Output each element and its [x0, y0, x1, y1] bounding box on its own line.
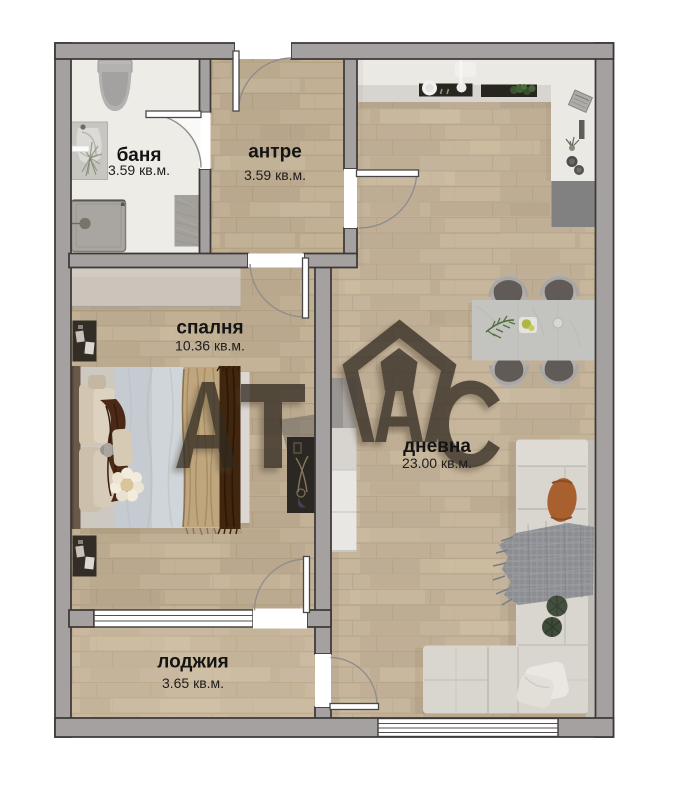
svg-text:лоджия: лоджия [157, 652, 228, 673]
svg-text:10.36 кв.м.: 10.36 кв.м. [175, 338, 245, 354]
svg-text:антре: антре [248, 142, 302, 163]
svg-text:спалня: спалня [176, 318, 243, 339]
svg-text:23.00 кв.м.: 23.00 кв.м. [402, 455, 472, 471]
svg-text:3.59 кв.м.: 3.59 кв.м. [244, 167, 306, 183]
svg-text:3.59 кв.м.: 3.59 кв.м. [108, 162, 170, 178]
svg-text:дневна: дневна [403, 436, 471, 457]
svg-text:3.65 кв.м.: 3.65 кв.м. [162, 675, 224, 691]
